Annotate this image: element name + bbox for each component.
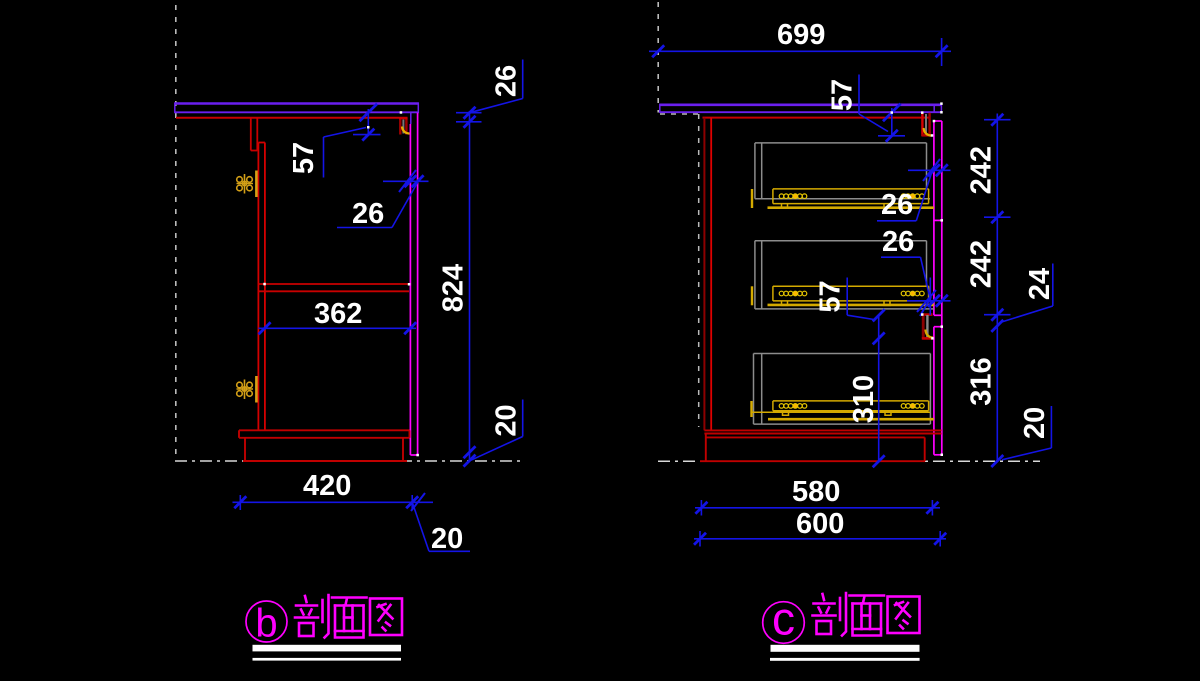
svg-text:310: 310 — [848, 375, 880, 423]
svg-text:20: 20 — [431, 523, 463, 555]
svg-text:b: b — [255, 602, 277, 646]
svg-text:362: 362 — [314, 298, 362, 330]
svg-text:20: 20 — [1019, 407, 1051, 439]
svg-text:316: 316 — [966, 357, 998, 405]
svg-text:24: 24 — [1024, 268, 1056, 300]
svg-text:824: 824 — [438, 264, 470, 312]
svg-text:699: 699 — [777, 19, 825, 51]
svg-text:26: 26 — [352, 198, 384, 230]
svg-text:26: 26 — [882, 226, 914, 258]
svg-text:242: 242 — [966, 146, 998, 194]
svg-text:580: 580 — [792, 476, 840, 508]
svg-text:26: 26 — [491, 65, 523, 97]
svg-text:420: 420 — [303, 470, 351, 502]
svg-text:57: 57 — [815, 280, 847, 312]
svg-text:20: 20 — [491, 404, 523, 436]
svg-text:600: 600 — [796, 508, 844, 540]
svg-text:57: 57 — [288, 142, 320, 174]
svg-text:c: c — [772, 593, 795, 645]
svg-text:26: 26 — [881, 189, 913, 221]
svg-text:242: 242 — [966, 240, 998, 288]
svg-text:57: 57 — [827, 79, 859, 111]
